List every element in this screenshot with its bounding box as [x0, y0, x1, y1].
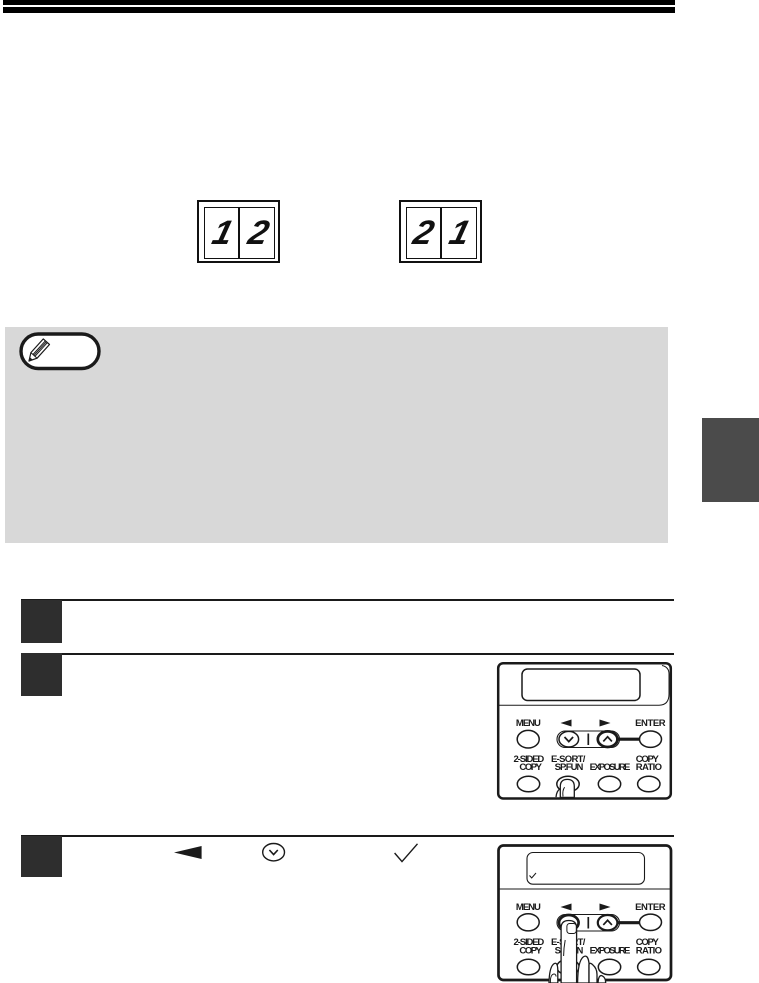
svg-text:COPY: COPY — [519, 946, 542, 957]
svg-text:MENU: MENU — [516, 718, 541, 729]
svg-text:MENU: MENU — [516, 902, 541, 913]
svg-text:EXPOSURE: EXPOSURE — [590, 946, 631, 957]
svg-text:RATIO: RATIO — [636, 762, 662, 773]
svg-text:ENTER: ENTER — [635, 718, 666, 729]
svg-text:RATIO: RATIO — [636, 946, 662, 957]
svg-text:SP.FUN: SP.FUN — [555, 762, 584, 773]
svg-text:COPY: COPY — [519, 762, 542, 773]
svg-text:EXPOSURE: EXPOSURE — [590, 762, 631, 773]
svg-text:ENTER: ENTER — [635, 902, 666, 913]
